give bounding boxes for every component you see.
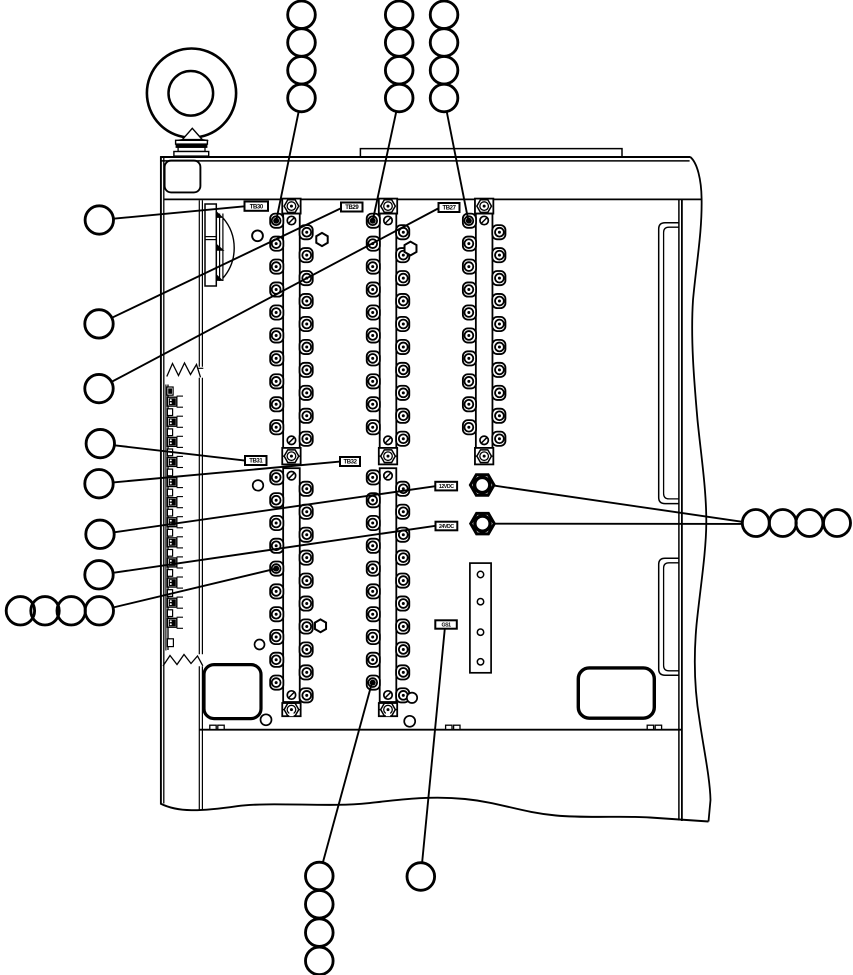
- svg-text:TB31: TB31: [249, 459, 263, 465]
- svg-text:TB32: TB32: [343, 460, 357, 466]
- svg-text:12VDC: 12VDC: [439, 484, 454, 490]
- svg-text:TB27: TB27: [442, 206, 456, 212]
- svg-text:GS1: GS1: [441, 623, 451, 629]
- svg-text:TB29: TB29: [345, 205, 359, 211]
- svg-text:24VDC: 24VDC: [439, 524, 454, 530]
- svg-text:TB30: TB30: [250, 204, 264, 210]
